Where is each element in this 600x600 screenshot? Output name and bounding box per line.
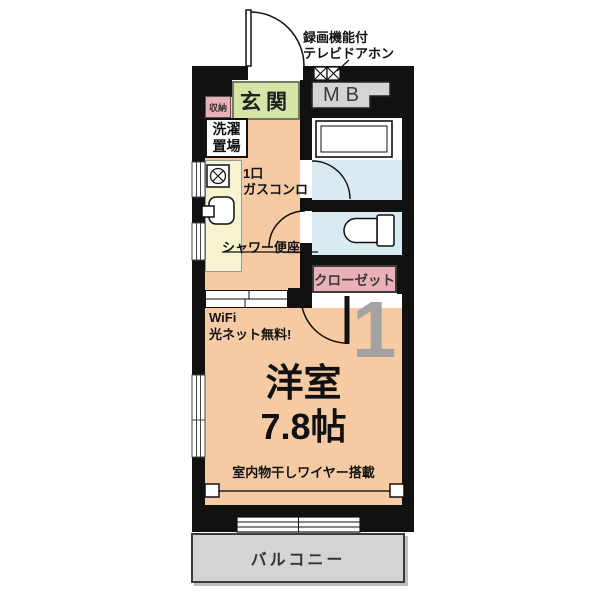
wifi-note-line2: 光ネット無料! <box>209 327 291 344</box>
stove-burner-icon <box>207 165 229 187</box>
room-door-icon <box>301 296 347 344</box>
shower-toilet-label: シャワー便座 <box>222 237 300 256</box>
room-size-label: 7.8帖 <box>205 398 402 450</box>
entrance-door-icon <box>246 10 304 66</box>
bathtub-icon <box>316 121 392 157</box>
stove-note: 1口 ガスコンロ <box>243 166 308 199</box>
floorplan-linework <box>0 0 600 600</box>
doorphone-note-line1: 録画機能付 <box>303 30 394 46</box>
stove-note-line1: 1口 <box>243 166 308 182</box>
laundry-wire-icon <box>205 484 404 497</box>
meter-box-label: MB <box>316 84 372 107</box>
laundry-wire-label: 室内物干しワイヤー搭載 <box>205 462 402 481</box>
doorphone-note: 録画機能付 テレビドアホン <box>303 30 394 63</box>
stove-note-line2: ガスコンロ <box>243 182 308 198</box>
floorplan: 玄関 収納 洗濯 置場 クローゼット バルコニー <box>0 0 600 600</box>
sink-icon <box>202 197 234 224</box>
bath-door-arc <box>312 161 350 199</box>
wifi-note: WiFi 光ネット無料! <box>209 310 291 344</box>
wifi-note-line1: WiFi <box>209 310 291 327</box>
toilet-icon <box>344 215 394 246</box>
doorphone-icon <box>314 60 349 80</box>
doorphone-note-line2: テレビドアホン <box>303 46 394 62</box>
